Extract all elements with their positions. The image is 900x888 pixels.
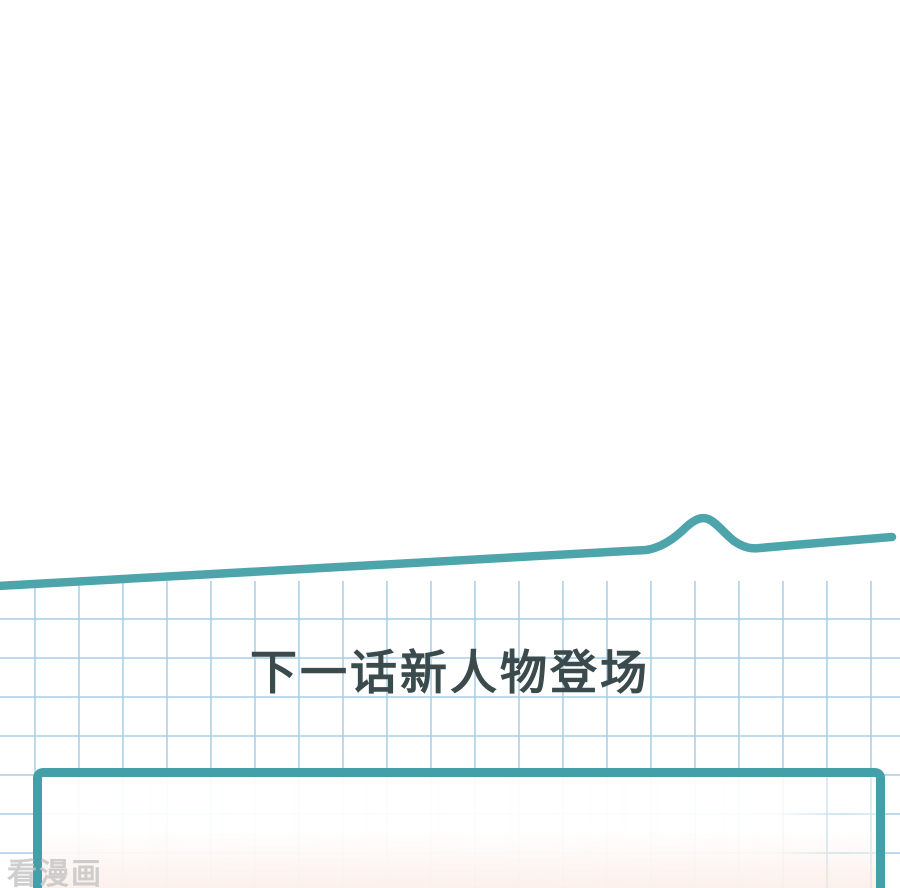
watermark-text: 看漫画: [7, 849, 103, 888]
next-panel-interior: [42, 777, 876, 888]
comic-page: 下一话新人物登场 看漫画: [0, 0, 900, 888]
next-chapter-announcement-text: 下一话新人物登场: [0, 645, 900, 703]
torn-edge-line-path: [0, 518, 892, 586]
next-panel-frame: [33, 768, 885, 888]
